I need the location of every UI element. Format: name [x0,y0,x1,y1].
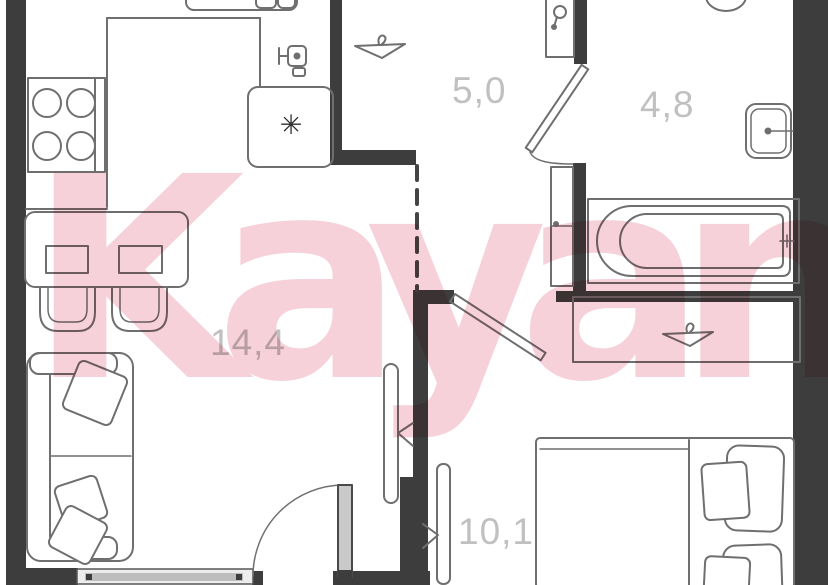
living-bedroom-wall [413,290,428,480]
bedroom-door-leaf [450,294,545,360]
hanger-icon [663,323,713,346]
bathroom-fixtures [588,0,799,283]
door-hinge [338,570,352,583]
bed [536,438,794,585]
bed-cushion [701,461,750,520]
toilet [706,0,746,11]
snowflake-icon: ✳ [276,111,306,141]
door-leaf [338,485,352,577]
hanger-icon [355,35,405,58]
dining-table [25,212,188,287]
hallway-area-label: 5,0 [452,70,506,112]
corridor-right-wall [573,163,586,291]
sofa [27,353,133,566]
burner [67,132,95,160]
floor-plan: 5,0 4,8 14,4 10,1 ✳ Kayan [0,0,828,585]
kitchen-right-wall [330,0,342,156]
burner [33,89,61,117]
kitchen-counter [26,18,260,209]
kitchen-fixtures [26,0,333,209]
floor-plan-drawing [0,0,828,585]
bedroom-area-label: 10,1 [458,511,534,553]
hall-bath-wall [574,0,587,64]
bottom-left-wall [6,568,78,585]
bed-cushion [703,556,751,585]
bathtub [588,199,799,283]
kitchen-upper-cabinet [186,0,297,10]
wash-basin [746,104,793,158]
living-bedroom-wall-lower [400,477,428,585]
bathroom-door-leaf [526,65,589,164]
wardrobe [573,297,800,362]
balcony-door [253,485,352,583]
kitchen-sink-icon [279,46,306,76]
right-outer-wall [793,0,828,585]
left-outer-wall [6,0,26,585]
bedroom-door-stub-wall [413,290,454,304]
kitchen-bottom-wall [330,150,416,165]
water-heater-icon [552,6,566,29]
burner [33,132,61,160]
living-window [77,569,253,584]
living-fixtures [25,212,413,583]
burner [67,89,95,117]
living-area-label: 14,4 [210,322,286,364]
hallway-fixtures [355,0,588,291]
chair [40,288,95,331]
door-swing-arc [253,485,344,576]
hall-closet [546,0,574,57]
tv-bracket [398,423,413,446]
stove [28,78,105,172]
corridor-door-leaf-open [551,167,573,286]
bathroom-area-label: 4,8 [640,84,694,126]
chair [112,288,167,331]
